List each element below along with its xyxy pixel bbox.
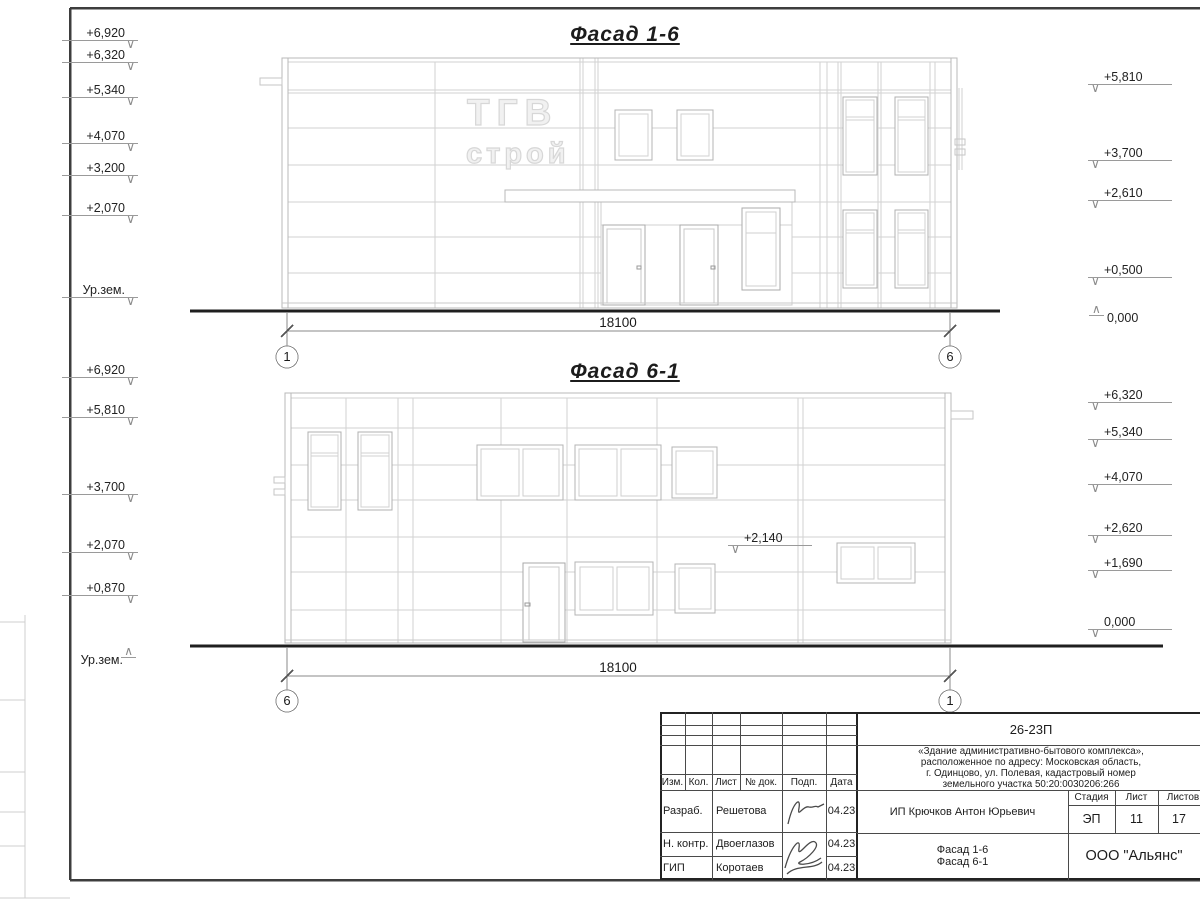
window	[575, 543, 915, 615]
col-header-doc: № док.	[740, 774, 782, 790]
elevation-arrow-icon: ∨	[126, 415, 135, 427]
axis-label: 1	[276, 349, 298, 364]
elevation-value: +3,700	[1088, 146, 1172, 161]
sheet-label: Лист	[1115, 790, 1158, 805]
date-developer: 04.23	[826, 790, 857, 832]
name-ncontrol: Двоеглазов	[716, 832, 782, 856]
role-developer: Разраб.	[663, 790, 712, 832]
client-name: ИП Крючков Антон Юрьевич	[857, 790, 1068, 833]
elevation-arrow-icon: ∨	[1091, 533, 1100, 545]
elevation-mark: +5,810∨	[1088, 70, 1172, 85]
elevation-arrow-icon: ∨	[1091, 400, 1100, 412]
elevation-mark: +2,140∨	[728, 531, 812, 546]
facade-top-title: Фасад 1-6	[540, 23, 710, 47]
elevation-mark: +3,200∨	[62, 161, 138, 176]
facade-1-6-drawing	[190, 58, 1000, 311]
elevation-arrow-icon: ∨	[126, 173, 135, 185]
elevation-value: +2,610	[1088, 186, 1172, 201]
elevation-mark: Ур.зем.∧	[62, 653, 138, 667]
elevation-value: +4,070	[1088, 470, 1172, 485]
elevation-mark: Ур.зем.∨	[62, 283, 138, 298]
elevation-mark: +6,320∨	[1088, 388, 1172, 403]
elevation-arrow-icon: ∨	[126, 95, 135, 107]
elevation-value: +6,320	[1088, 388, 1172, 403]
elevation-arrow-icon: ∧	[121, 645, 136, 658]
elevation-arrow-icon: ∨	[126, 295, 135, 307]
elevation-arrow-icon: ∨	[126, 550, 135, 562]
elevation-value: +2,620	[1088, 521, 1172, 536]
signature	[784, 792, 826, 830]
col-header-list: Лист	[712, 774, 740, 790]
elevation-arrow-icon: ∧	[1089, 303, 1104, 316]
elevation-arrow-icon: ∨	[126, 492, 135, 504]
elevation-value: 0,000	[1088, 615, 1172, 630]
axis-label: 6	[939, 349, 961, 364]
elevation-mark: +2,070∨	[62, 201, 138, 216]
elevation-mark: +3,700∨	[62, 480, 138, 495]
window	[843, 97, 928, 288]
elevation-mark: +5,810∨	[62, 403, 138, 418]
role-ncontrol: Н. контр.	[663, 832, 712, 856]
elevation-value: +2,140	[728, 531, 812, 546]
elevation-value: +5,810	[1088, 70, 1172, 85]
drawing-sheet: Фасад 1-6 Фасад 6-1 ТГВ строй +6,920∨ +6…	[0, 0, 1200, 900]
col-header-podp: Подп.	[782, 774, 826, 790]
door	[523, 563, 565, 642]
elevation-mark: +3,700∨	[1088, 146, 1172, 161]
name-developer: Решетова	[716, 790, 782, 832]
total-sheets-value: 17	[1158, 805, 1200, 833]
window	[615, 110, 713, 160]
signature	[780, 830, 826, 878]
stage-label: Стадия	[1068, 790, 1115, 805]
elevation-value: +5,340	[1088, 425, 1172, 440]
elevation-mark: 0,000∧	[1088, 311, 1172, 325]
elevation-arrow-icon: ∨	[1091, 437, 1100, 449]
elevation-arrow-icon: ∨	[731, 543, 740, 555]
elevation-arrow-icon: ∨	[126, 213, 135, 225]
window	[308, 432, 392, 510]
building-logo-line1: ТГВ	[467, 92, 558, 134]
elevation-mark: +5,340∨	[1088, 425, 1172, 440]
col-header-izm: Изм.	[660, 774, 685, 790]
elevation-arrow-icon: ∨	[126, 60, 135, 72]
axis-label: 1	[939, 693, 961, 708]
elevation-arrow-icon: ∨	[1091, 627, 1100, 639]
name-gip: Коротаев	[716, 856, 782, 880]
col-header-data: Дата	[826, 774, 857, 790]
elevation-mark: +6,920∨	[62, 363, 138, 378]
date-ncontrol: 04.23	[826, 832, 857, 856]
elevation-value: +1,690	[1088, 556, 1172, 571]
document-code: 26-23П	[857, 716, 1200, 743]
project-description: «Здание административно-бытового комплек…	[860, 746, 1200, 789]
col-header-kol: Кол.	[685, 774, 712, 790]
elevation-mark: 0,000∨	[1088, 615, 1172, 630]
sheet-number: 11	[1115, 805, 1158, 833]
elevation-mark: +4,070∨	[62, 129, 138, 144]
title-block: 26-23П «Здание административно-бытового …	[660, 712, 1200, 880]
elevation-mark: +2,610∨	[1088, 186, 1172, 201]
elevation-arrow-icon: ∨	[126, 141, 135, 153]
facade-6-1-drawing	[190, 393, 1163, 646]
elevation-arrow-icon: ∨	[1091, 82, 1100, 94]
adjacent-sheet-edge	[0, 615, 70, 898]
date-gip: 04.23	[826, 856, 857, 880]
dimension-value: 18100	[540, 315, 696, 330]
building-logo-line2: строй	[466, 138, 570, 171]
stage-value: ЭП	[1068, 805, 1115, 833]
elevation-arrow-icon: ∨	[126, 593, 135, 605]
elevation-arrow-icon: ∨	[1091, 568, 1100, 580]
elevation-mark: +2,620∨	[1088, 521, 1172, 536]
elevation-arrow-icon: ∨	[126, 375, 135, 387]
elevation-mark: +6,320∨	[62, 48, 138, 63]
elevation-mark: +2,070∨	[62, 538, 138, 553]
facade-bottom-title: Фасад 6-1	[540, 360, 710, 384]
elevation-arrow-icon: ∨	[1091, 158, 1100, 170]
drawing-title: Фасад 1-6 Фасад 6-1	[857, 833, 1068, 878]
elevation-arrow-icon: ∨	[1091, 482, 1100, 494]
dimension-value: 18100	[540, 660, 696, 675]
window	[477, 445, 717, 500]
role-gip: ГИП	[663, 856, 712, 880]
axis-label: 6	[276, 693, 298, 708]
elevation-mark: +0,870∨	[62, 581, 138, 596]
company-name: ООО "Альянс"	[1068, 833, 1200, 878]
elevation-arrow-icon: ∨	[1091, 275, 1100, 287]
elevation-arrow-icon: ∨	[1091, 198, 1100, 210]
total-sheets-label: Листов	[1158, 790, 1200, 805]
elevation-mark: +0,500∨	[1088, 263, 1172, 278]
elevation-mark: +1,690∨	[1088, 556, 1172, 571]
window	[742, 208, 780, 290]
elevation-mark: +5,340∨	[62, 83, 138, 98]
elevation-mark: +6,920∨	[62, 26, 138, 41]
dimension-bottom	[276, 648, 961, 712]
elevation-value: +0,500	[1088, 263, 1172, 278]
elevation-mark: +4,070∨	[1088, 470, 1172, 485]
